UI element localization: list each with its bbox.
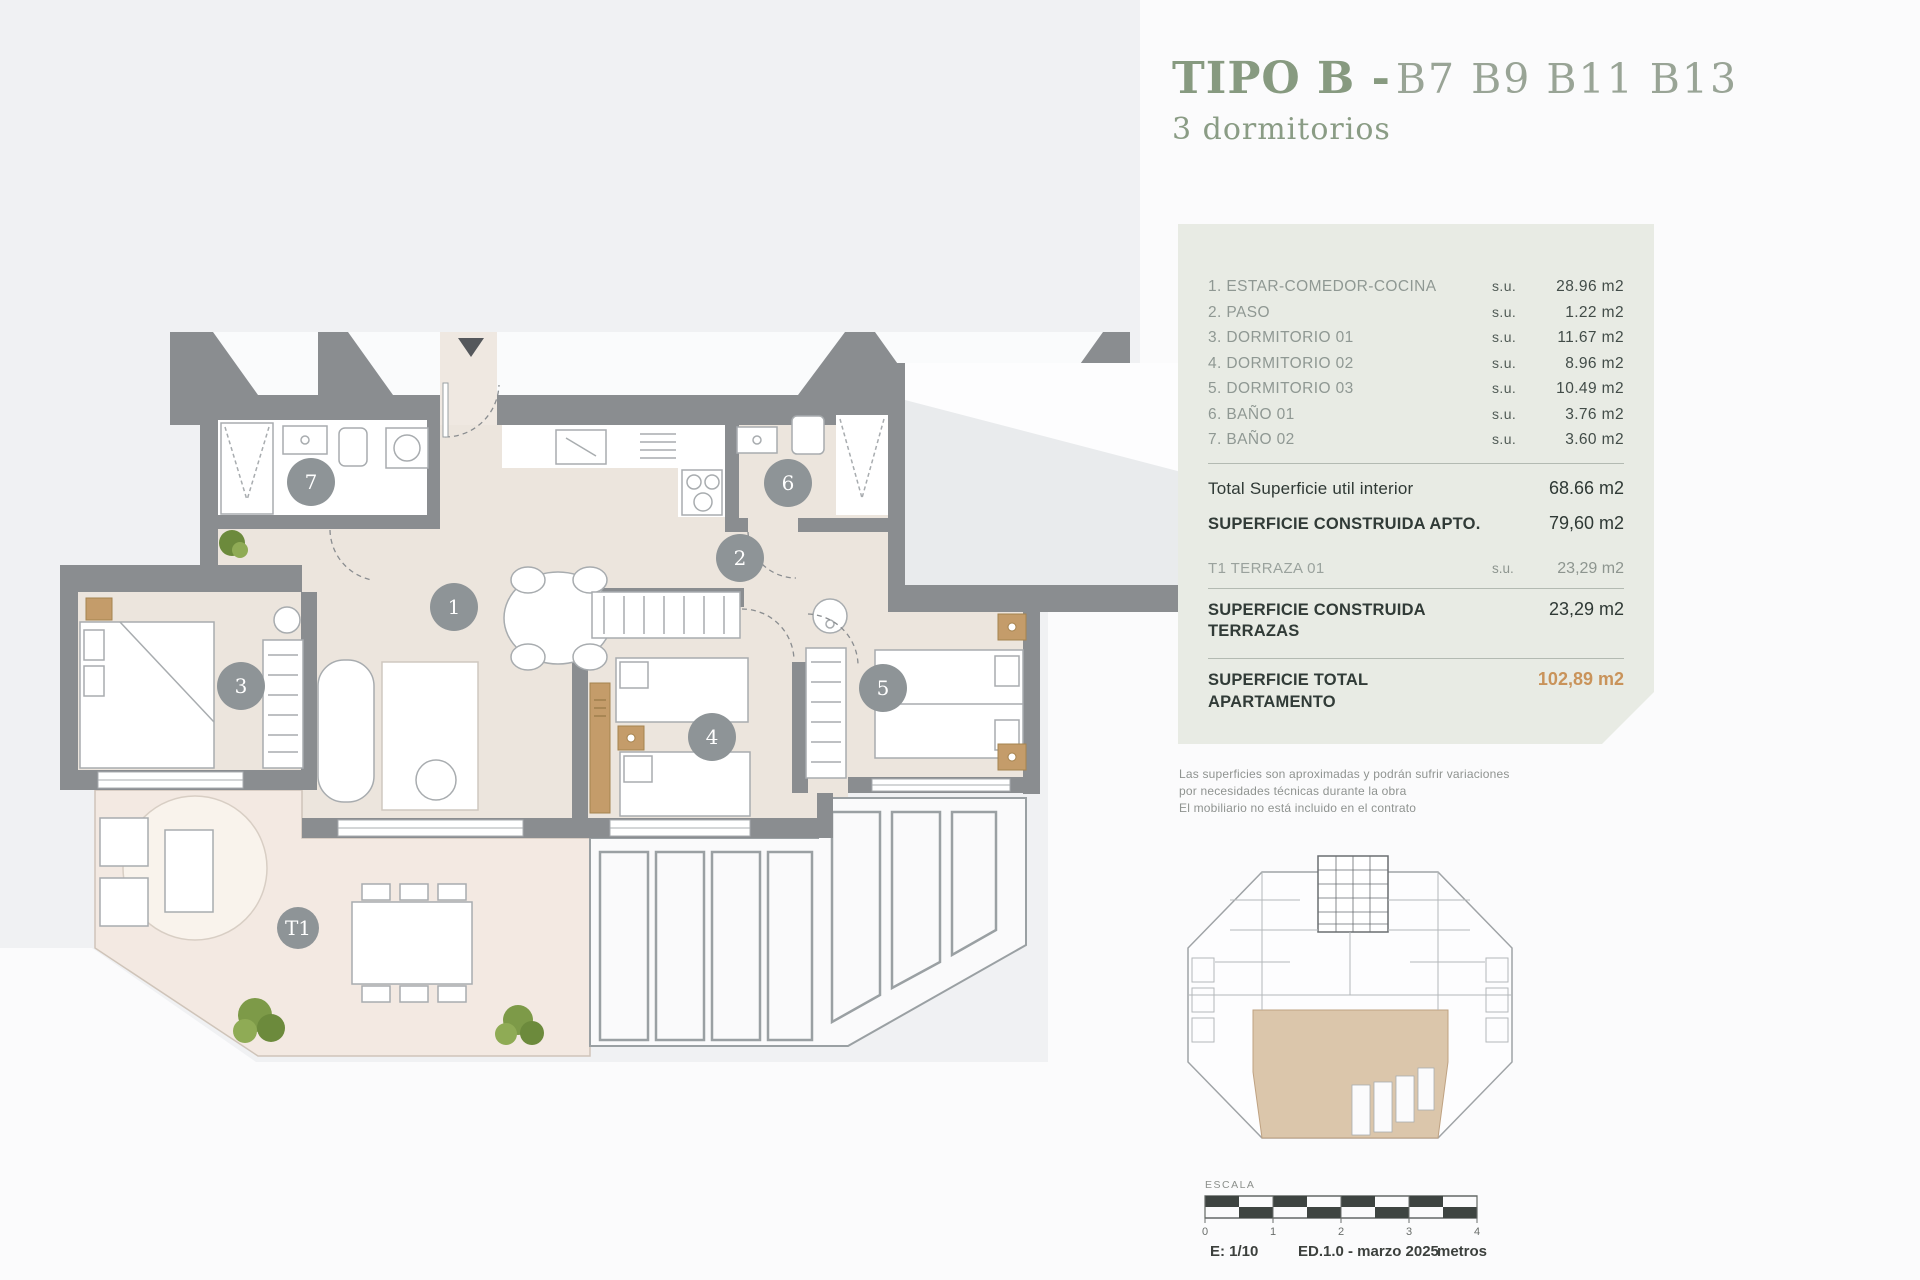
title-units: B7 B9 B11 B13 <box>1396 55 1738 103</box>
divider <box>1208 463 1624 464</box>
divider <box>1208 588 1624 589</box>
scale-tick: 4 <box>1474 1226 1480 1238</box>
scale-ratio: E: 1/10 <box>1210 1243 1258 1260</box>
room-marker-label: 4 <box>706 725 719 749</box>
terraza-row: T1 TERRAZA 01 s.u. 23,29 m2 <box>1208 560 1624 578</box>
divider <box>1208 658 1624 659</box>
room-marker-label: 3 <box>235 674 248 698</box>
room-marker-label: 5 <box>877 676 890 700</box>
page-title: TIPO B - B7 B9 B11 B13 3 dormitorios <box>1172 56 1738 147</box>
construida-terrazas-row: SUPERFICIE CONSTRUIDA TERRAZAS 23,29 m2 <box>1208 599 1624 643</box>
total-area-value: 102,89 m2 <box>1538 669 1624 690</box>
room-row: 2. PASO s.u. 1.22 m2 <box>1208 300 1624 326</box>
room-row: 7. BAÑO 02 s.u. 3.60 m2 <box>1208 427 1624 453</box>
scale-tick: 3 <box>1406 1226 1412 1238</box>
room-marker-label: 2 <box>734 546 747 570</box>
scale-tick: 2 <box>1338 1226 1344 1238</box>
title-type: TIPO B - <box>1172 53 1391 104</box>
room-row: 3. DORMITORIO 01 s.u. 11.67 m2 <box>1208 325 1624 351</box>
scale-title: ESCALA <box>1205 1179 1255 1191</box>
disclaimer: Las superficies son aproximadas y podrán… <box>1179 766 1510 816</box>
room-marker-label: 1 <box>448 595 461 619</box>
scale-edition: ED.1.0 - marzo 2025 <box>1298 1243 1439 1260</box>
scale-bar: ESCALA 0 1 2 3 4 E: 1/10 ED.1.0 - marzo … <box>1202 1179 1487 1260</box>
areas-panel: 1. ESTAR-COMEDOR-COCINA s.u. 28.96 m2 2.… <box>1178 224 1654 744</box>
title-subtitle: 3 dormitorios <box>1172 112 1738 147</box>
room-row: 5. DORMITORIO 03 s.u. 10.49 m2 <box>1208 376 1624 402</box>
total-apartamento-row: SUPERFICIE TOTAL APARTAMENTO 102,89 m2 <box>1208 669 1624 713</box>
room-row: 1. ESTAR-COMEDOR-COCINA s.u. 28.96 m2 <box>1208 274 1624 300</box>
room-marker-label: 6 <box>782 471 795 495</box>
scale-tick: 1 <box>1270 1226 1276 1238</box>
room-row: 6. BAÑO 01 s.u. 3.76 m2 <box>1208 402 1624 428</box>
total-util-row: Total Superficie util interior 68.66 m2 <box>1208 478 1624 499</box>
bathroom6-shower-floor <box>836 415 888 515</box>
room-row: 4. DORMITORIO 02 s.u. 8.96 m2 <box>1208 351 1624 377</box>
terrace-marker-label: T1 <box>285 916 311 940</box>
construida-apto-row: SUPERFICIE CONSTRUIDA APTO. 79,60 m2 <box>1208 513 1624 534</box>
scale-units: metros <box>1437 1243 1487 1260</box>
room-marker-label: 7 <box>305 470 318 494</box>
scale-tick: 0 <box>1202 1226 1208 1238</box>
key-plan <box>1188 856 1512 1138</box>
